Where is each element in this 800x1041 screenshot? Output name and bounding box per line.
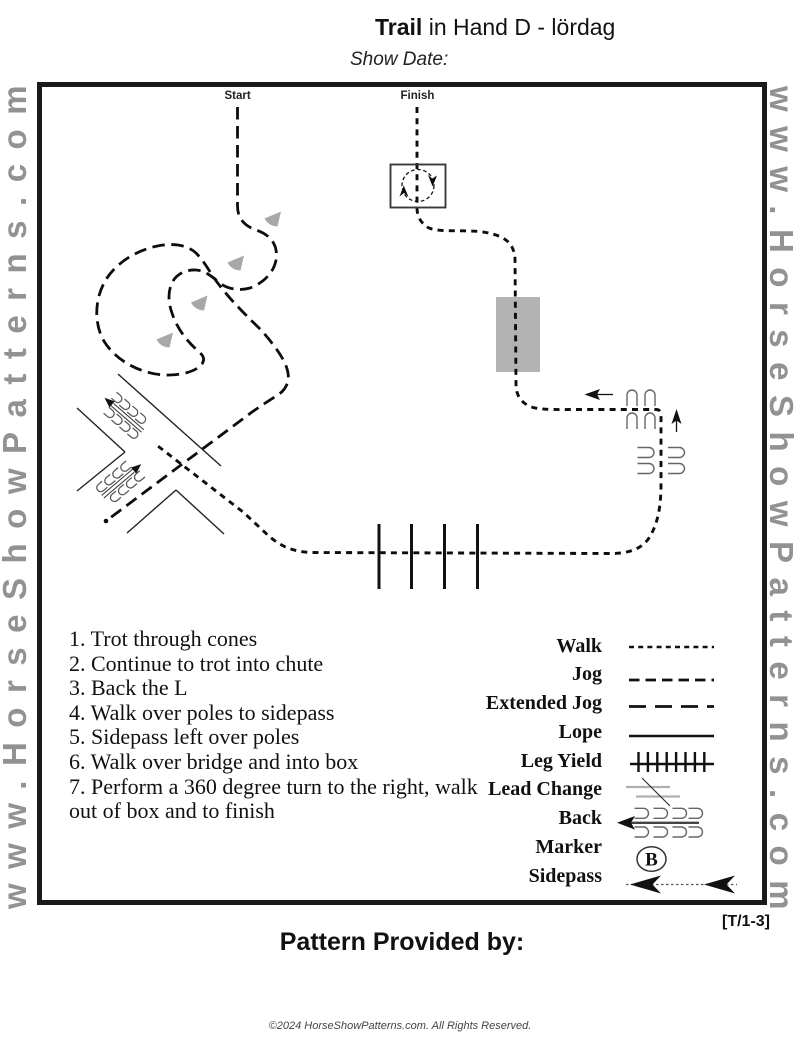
svg-text:B: B xyxy=(645,850,658,871)
